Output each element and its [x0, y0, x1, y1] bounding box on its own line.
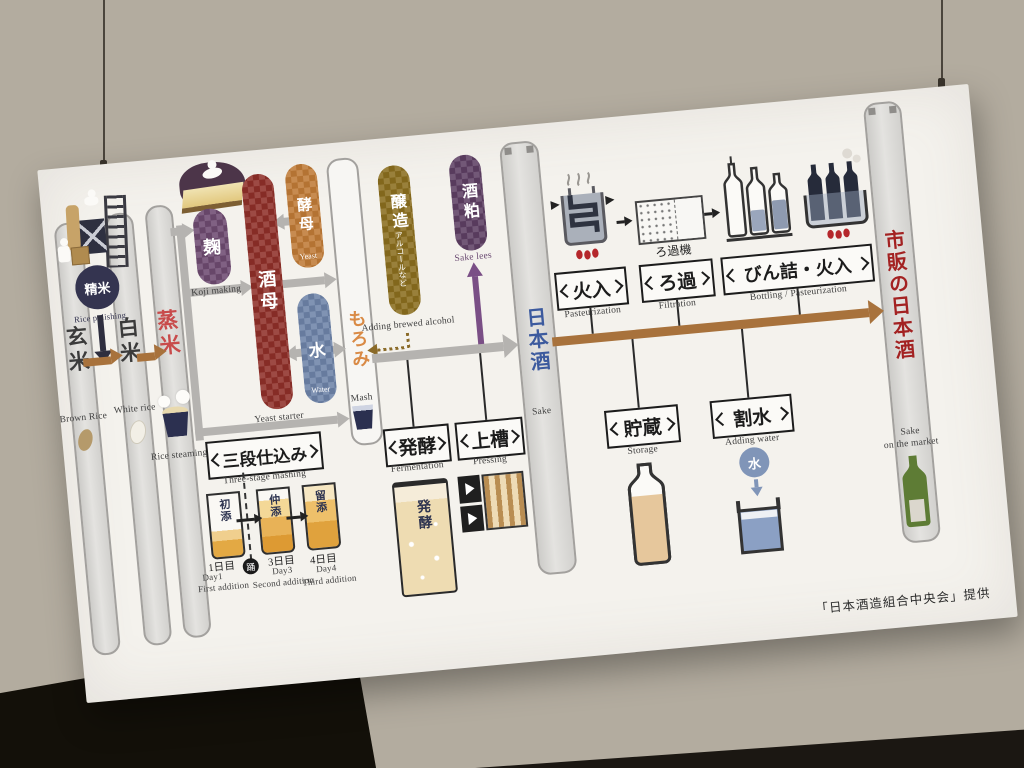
filter-in-arrow	[624, 216, 633, 227]
water-tub-icon	[731, 495, 790, 558]
filter-out-line	[704, 212, 712, 216]
hanging-wire-left	[103, 0, 105, 168]
adding-water-label: 割水	[732, 401, 772, 431]
bottling-bottles-icon	[717, 151, 797, 249]
water-drop-badge: 水	[738, 446, 771, 479]
press-arrow-box	[460, 504, 484, 532]
arrow-starter-to-mash	[324, 271, 337, 288]
three-stage-label: 三段仕込み	[221, 439, 308, 472]
press-slats	[481, 471, 528, 531]
poster-credit: 「日本酒造組合中央会」提供	[681, 582, 991, 630]
water-label: 水	[307, 335, 326, 361]
addition-tank-1-label: 初添	[215, 498, 233, 523]
addition-tank-1: 初添	[206, 491, 246, 560]
bottle-pasteurization-tub-icon	[797, 144, 873, 242]
rice-polishing-label: 精米	[84, 277, 112, 298]
arrow-pipe-to-mash	[337, 411, 350, 428]
brewed-alcohol-node: 醸造 アルコールなど	[376, 164, 422, 316]
sake-process-poster: 精米 Rice polishing 玄米 Brown Rice 白米 White…	[37, 84, 1017, 703]
pasteurization-coil-icon	[548, 167, 621, 269]
flow-line-whiterice-steamedrice	[137, 352, 156, 362]
brewed-alcohol-sublabel: アルコールなど	[393, 231, 409, 288]
main-arrow-to-sake	[502, 333, 519, 358]
yeast-starter-label: 酒母	[252, 268, 282, 314]
pressing-label: 上槽	[470, 423, 510, 453]
sake-lees-label: 酒粕	[454, 182, 482, 224]
water-node: 水 Water	[296, 292, 338, 404]
odori-label: 踊	[246, 559, 256, 573]
koji-node: 麹	[192, 207, 233, 286]
koji-label: 麹	[202, 233, 222, 261]
storage-label: 貯蔵	[622, 411, 662, 441]
pipe-to-koji	[170, 227, 183, 236]
steam-puff	[158, 395, 171, 408]
press-right-arrow-icon	[467, 512, 477, 525]
main-line-gray	[372, 342, 504, 363]
tank1-to-tank2-line	[236, 518, 254, 523]
water-pour-arrow	[751, 487, 764, 497]
filter-in-line	[616, 220, 624, 224]
press-right-arrow-icon	[465, 483, 475, 496]
flow-line-brownrice-whiterice	[83, 356, 112, 367]
arrow-to-white-rice	[110, 347, 123, 364]
fermentation-label: 発酵	[397, 430, 437, 460]
pestle-icon	[65, 205, 81, 252]
sake-lees-node: 酒粕	[448, 153, 489, 252]
connector-pressing	[479, 353, 487, 420]
pasteurization-label: 火入	[571, 273, 611, 303]
lees-arrow-line	[472, 276, 484, 346]
addition-tank-3-label: 留添	[311, 489, 329, 514]
yeast-label: 酵母	[292, 196, 316, 236]
bottling-label: びん詰・火入	[743, 252, 853, 288]
filtration-label: ろ過	[657, 265, 697, 295]
storage-bottle-icon	[623, 460, 674, 567]
steam-pot	[161, 411, 191, 437]
pressing-banner: 上槽	[454, 417, 525, 461]
yeast-node: 酵母 Yeast	[284, 163, 325, 270]
pressing-machine-icon	[457, 471, 528, 533]
tank1-to-tank2-arrow	[254, 513, 263, 524]
tank2-to-tank3-line	[286, 516, 300, 520]
steam-puff	[175, 389, 190, 404]
worker-figure	[57, 246, 70, 263]
connector-fermentation	[406, 360, 414, 427]
tank2-to-tank3-arrow	[300, 511, 309, 522]
filter-clear-half	[674, 197, 704, 239]
connector-storage	[631, 339, 639, 408]
rice-polishing-machine-illustration	[60, 188, 137, 274]
worker-figure	[84, 196, 99, 206]
rice-sack-icon	[71, 246, 91, 266]
brewed-alcohol-label: 醸造	[383, 192, 410, 232]
press-arrow-box	[457, 475, 481, 503]
connector-adding-water	[741, 329, 749, 398]
water-en: Water	[304, 384, 337, 396]
ladder-icon	[104, 195, 129, 268]
hanging-wire-right	[941, 0, 943, 82]
fermentation-tank-icon: 発酵	[392, 478, 458, 598]
fermentation-tank-label: 発酵	[411, 498, 434, 532]
filter-out-arrow	[712, 207, 721, 218]
press-arrow-panel	[457, 475, 484, 533]
lees-arrowhead	[466, 262, 483, 277]
storage-banner: 貯蔵	[604, 404, 681, 449]
koji-en: Koji making	[179, 283, 254, 300]
water-drop-label: 水	[747, 452, 762, 472]
line-starter-to-mash	[282, 276, 325, 288]
arrow-to-steamed-rice	[154, 343, 167, 360]
filter-machine-icon	[635, 195, 707, 245]
photo-scene: 精米 Rice polishing 玄米 Brown Rice 白米 White…	[0, 0, 1024, 768]
yeast-en: Yeast	[292, 250, 325, 262]
addition-tank-2-label: 仲添	[265, 493, 283, 518]
